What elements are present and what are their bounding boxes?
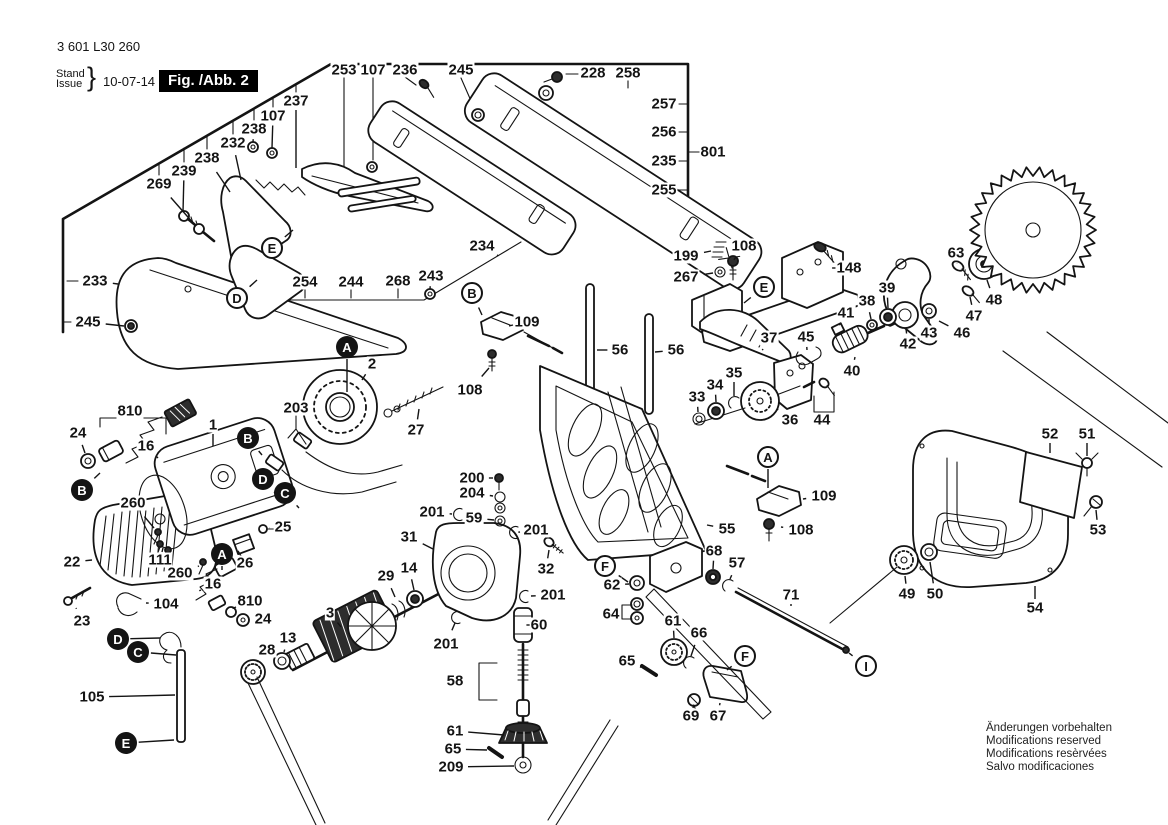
stand-issue-label: Stand Issue <box>56 69 85 89</box>
figure-label-box: Fig. /Abb. 2 <box>159 70 258 92</box>
part-label-243: 243 <box>417 269 444 284</box>
part-label-258: 258 <box>614 66 641 81</box>
part-label-49: 49 <box>898 587 917 602</box>
part-label-237: 237 <box>282 94 309 109</box>
part-label-203: 203 <box>282 401 309 416</box>
part-label-201: 201 <box>418 505 445 520</box>
ref-letter-E: E <box>261 237 283 259</box>
part-label-42: 42 <box>899 337 918 352</box>
part-label-23: 23 <box>73 614 92 629</box>
part-label-35: 35 <box>725 366 744 381</box>
part-label-14: 14 <box>400 561 419 576</box>
part-label-51: 51 <box>1078 427 1097 442</box>
ref-letter-B: B <box>461 282 483 304</box>
part-label-256: 256 <box>650 125 677 140</box>
part-label-201: 201 <box>522 523 549 538</box>
part-label-52: 52 <box>1041 427 1060 442</box>
document-part-number: 3 601 L30 260 <box>57 39 140 54</box>
part-label-245: 245 <box>74 315 101 330</box>
part-label-260: 260 <box>166 566 193 581</box>
part-label-47: 47 <box>965 309 984 324</box>
footer-line-en: Modifications reserved <box>986 735 1112 748</box>
part-label-59: 59 <box>465 511 484 526</box>
brace-glyph: } <box>87 62 96 93</box>
part-label-60: 60 <box>530 618 549 633</box>
part-label-63: 63 <box>947 246 966 261</box>
part-label-40: 40 <box>843 364 862 379</box>
labels-layer: 2531072362452282582572568012352552371072… <box>0 0 1168 825</box>
ref-letter-C: C <box>274 482 296 504</box>
part-label-33: 33 <box>688 390 707 405</box>
part-label-108: 108 <box>456 383 483 398</box>
part-label-234: 234 <box>468 239 495 254</box>
part-label-46: 46 <box>953 326 972 341</box>
part-label-810: 810 <box>116 404 143 419</box>
ref-letter-F: F <box>594 555 616 577</box>
ref-letter-A: A <box>211 543 233 565</box>
part-label-66: 66 <box>690 626 709 641</box>
ref-letter-B: B <box>237 427 259 449</box>
ref-letter-B: B <box>71 479 93 501</box>
part-label-257: 257 <box>650 97 677 112</box>
part-label-24: 24 <box>69 426 88 441</box>
part-label-228: 228 <box>579 66 606 81</box>
part-label-41: 41 <box>837 306 856 321</box>
part-label-109: 109 <box>810 489 837 504</box>
part-label-16: 16 <box>137 439 156 454</box>
part-label-31: 31 <box>400 530 419 545</box>
part-label-68: 68 <box>705 544 724 559</box>
ref-letter-F: F <box>734 645 756 667</box>
footer-line-es: Salvo modificaciones <box>986 761 1112 774</box>
ref-letter-D: D <box>252 468 274 490</box>
part-label-148: 148 <box>835 261 862 276</box>
part-label-61: 61 <box>446 724 465 739</box>
part-label-260: 260 <box>119 496 146 511</box>
part-label-254: 254 <box>291 275 318 290</box>
part-label-26: 26 <box>236 556 255 571</box>
part-label-58: 58 <box>446 674 465 689</box>
part-label-104: 104 <box>152 597 179 612</box>
part-label-54: 54 <box>1026 601 1045 616</box>
part-label-55: 55 <box>718 522 737 537</box>
part-label-29: 29 <box>377 569 396 584</box>
part-label-69: 69 <box>682 709 701 724</box>
part-label-810: 810 <box>236 594 263 609</box>
part-label-233: 233 <box>81 274 108 289</box>
part-label-34: 34 <box>706 378 725 393</box>
part-label-201: 201 <box>539 588 566 603</box>
part-label-253: 253 <box>330 63 357 78</box>
part-label-28: 28 <box>258 643 277 658</box>
part-label-22: 22 <box>63 555 82 570</box>
part-label-57: 57 <box>728 556 747 571</box>
part-label-244: 244 <box>337 275 364 290</box>
ref-letter-E: E <box>753 276 775 298</box>
part-label-65: 65 <box>444 742 463 757</box>
footer-line-fr: Modifications resèrvées <box>986 748 1112 761</box>
part-label-25: 25 <box>274 520 293 535</box>
part-label-239: 239 <box>170 164 197 179</box>
part-label-65: 65 <box>618 654 637 669</box>
ref-letter-A: A <box>757 446 779 468</box>
part-label-245: 245 <box>447 63 474 78</box>
part-label-45: 45 <box>797 330 816 345</box>
part-label-199: 199 <box>672 249 699 264</box>
part-label-62: 62 <box>603 578 622 593</box>
part-label-267: 267 <box>672 270 699 285</box>
part-label-43: 43 <box>920 326 939 341</box>
part-label-201: 201 <box>432 637 459 652</box>
ref-letter-E: E <box>115 732 137 754</box>
part-label-204: 204 <box>458 486 485 501</box>
part-label-56: 56 <box>611 343 630 358</box>
part-label-53: 53 <box>1089 523 1108 538</box>
part-label-50: 50 <box>926 587 945 602</box>
part-label-232: 232 <box>219 136 246 151</box>
part-label-268: 268 <box>384 274 411 289</box>
legal-footer: Änderungen vorbehalten Modifications res… <box>986 722 1112 774</box>
part-label-48: 48 <box>985 293 1004 308</box>
part-label-1: 1 <box>208 418 218 433</box>
part-label-37: 37 <box>760 331 779 346</box>
part-label-108: 108 <box>730 239 757 254</box>
part-label-255: 255 <box>650 183 677 198</box>
part-label-16: 16 <box>204 577 223 592</box>
footer-line-de: Änderungen vorbehalten <box>986 722 1112 735</box>
part-label-2: 2 <box>367 357 377 372</box>
part-label-109: 109 <box>513 315 540 330</box>
part-label-44: 44 <box>813 413 832 428</box>
part-label-24: 24 <box>254 612 273 627</box>
exploded-parts-diagram: 2531072362452282582572568012352552371072… <box>0 0 1168 825</box>
part-label-39: 39 <box>878 281 897 296</box>
part-label-64: 64 <box>602 607 621 622</box>
part-label-107: 107 <box>359 63 386 78</box>
part-label-269: 269 <box>145 177 172 192</box>
part-label-236: 236 <box>391 63 418 78</box>
ref-letter-D: D <box>107 628 129 650</box>
part-label-235: 235 <box>650 154 677 169</box>
part-label-36: 36 <box>781 413 800 428</box>
part-label-56: 56 <box>667 343 686 358</box>
part-label-13: 13 <box>279 631 298 646</box>
issue-date: 10-07-14 <box>103 74 155 89</box>
part-label-209: 209 <box>437 760 464 775</box>
part-label-71: 71 <box>782 588 801 603</box>
part-label-38: 38 <box>858 294 877 309</box>
part-label-61: 61 <box>664 614 683 629</box>
part-label-3: 3 <box>325 606 335 621</box>
part-label-67: 67 <box>709 709 728 724</box>
ref-letter-D: D <box>226 287 248 309</box>
issue-label: Issue <box>56 79 85 89</box>
ref-letter-C: C <box>127 641 149 663</box>
part-label-801: 801 <box>699 145 726 160</box>
part-label-32: 32 <box>537 562 556 577</box>
ref-letter-I: I <box>855 655 877 677</box>
part-label-200: 200 <box>458 471 485 486</box>
ref-letter-A: A <box>336 336 358 358</box>
part-label-108: 108 <box>787 523 814 538</box>
part-label-105: 105 <box>78 690 105 705</box>
part-label-27: 27 <box>407 423 426 438</box>
part-label-238: 238 <box>193 151 220 166</box>
